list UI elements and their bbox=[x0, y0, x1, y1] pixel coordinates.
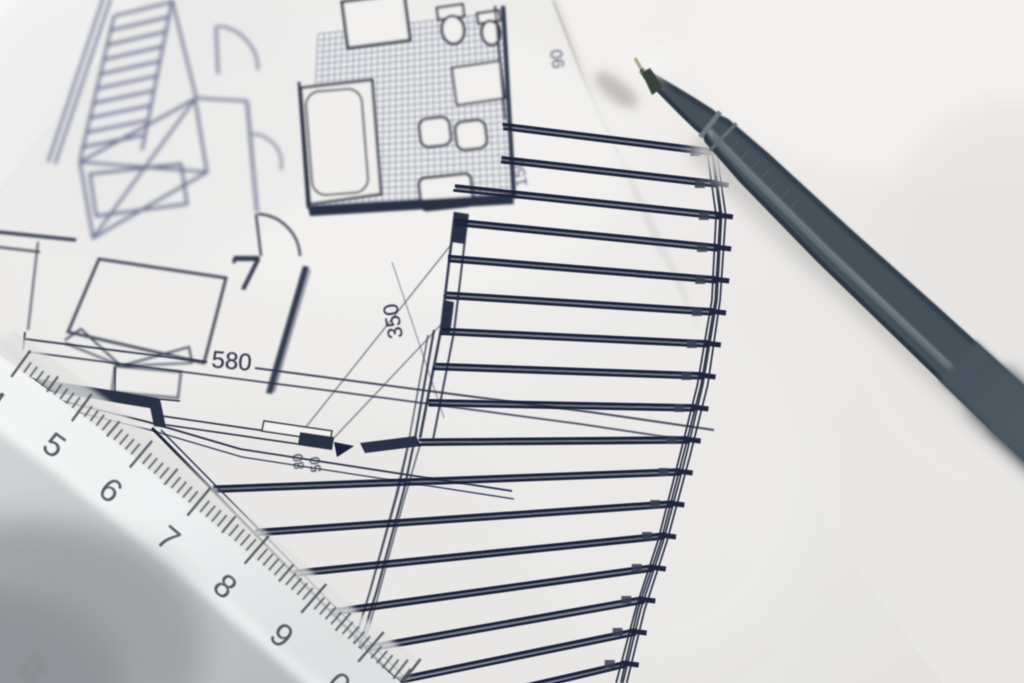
svg-text:80: 80 bbox=[289, 453, 307, 471]
svg-text:580: 580 bbox=[211, 346, 253, 376]
svg-text:50: 50 bbox=[306, 456, 324, 474]
svg-text:90: 90 bbox=[547, 48, 569, 70]
